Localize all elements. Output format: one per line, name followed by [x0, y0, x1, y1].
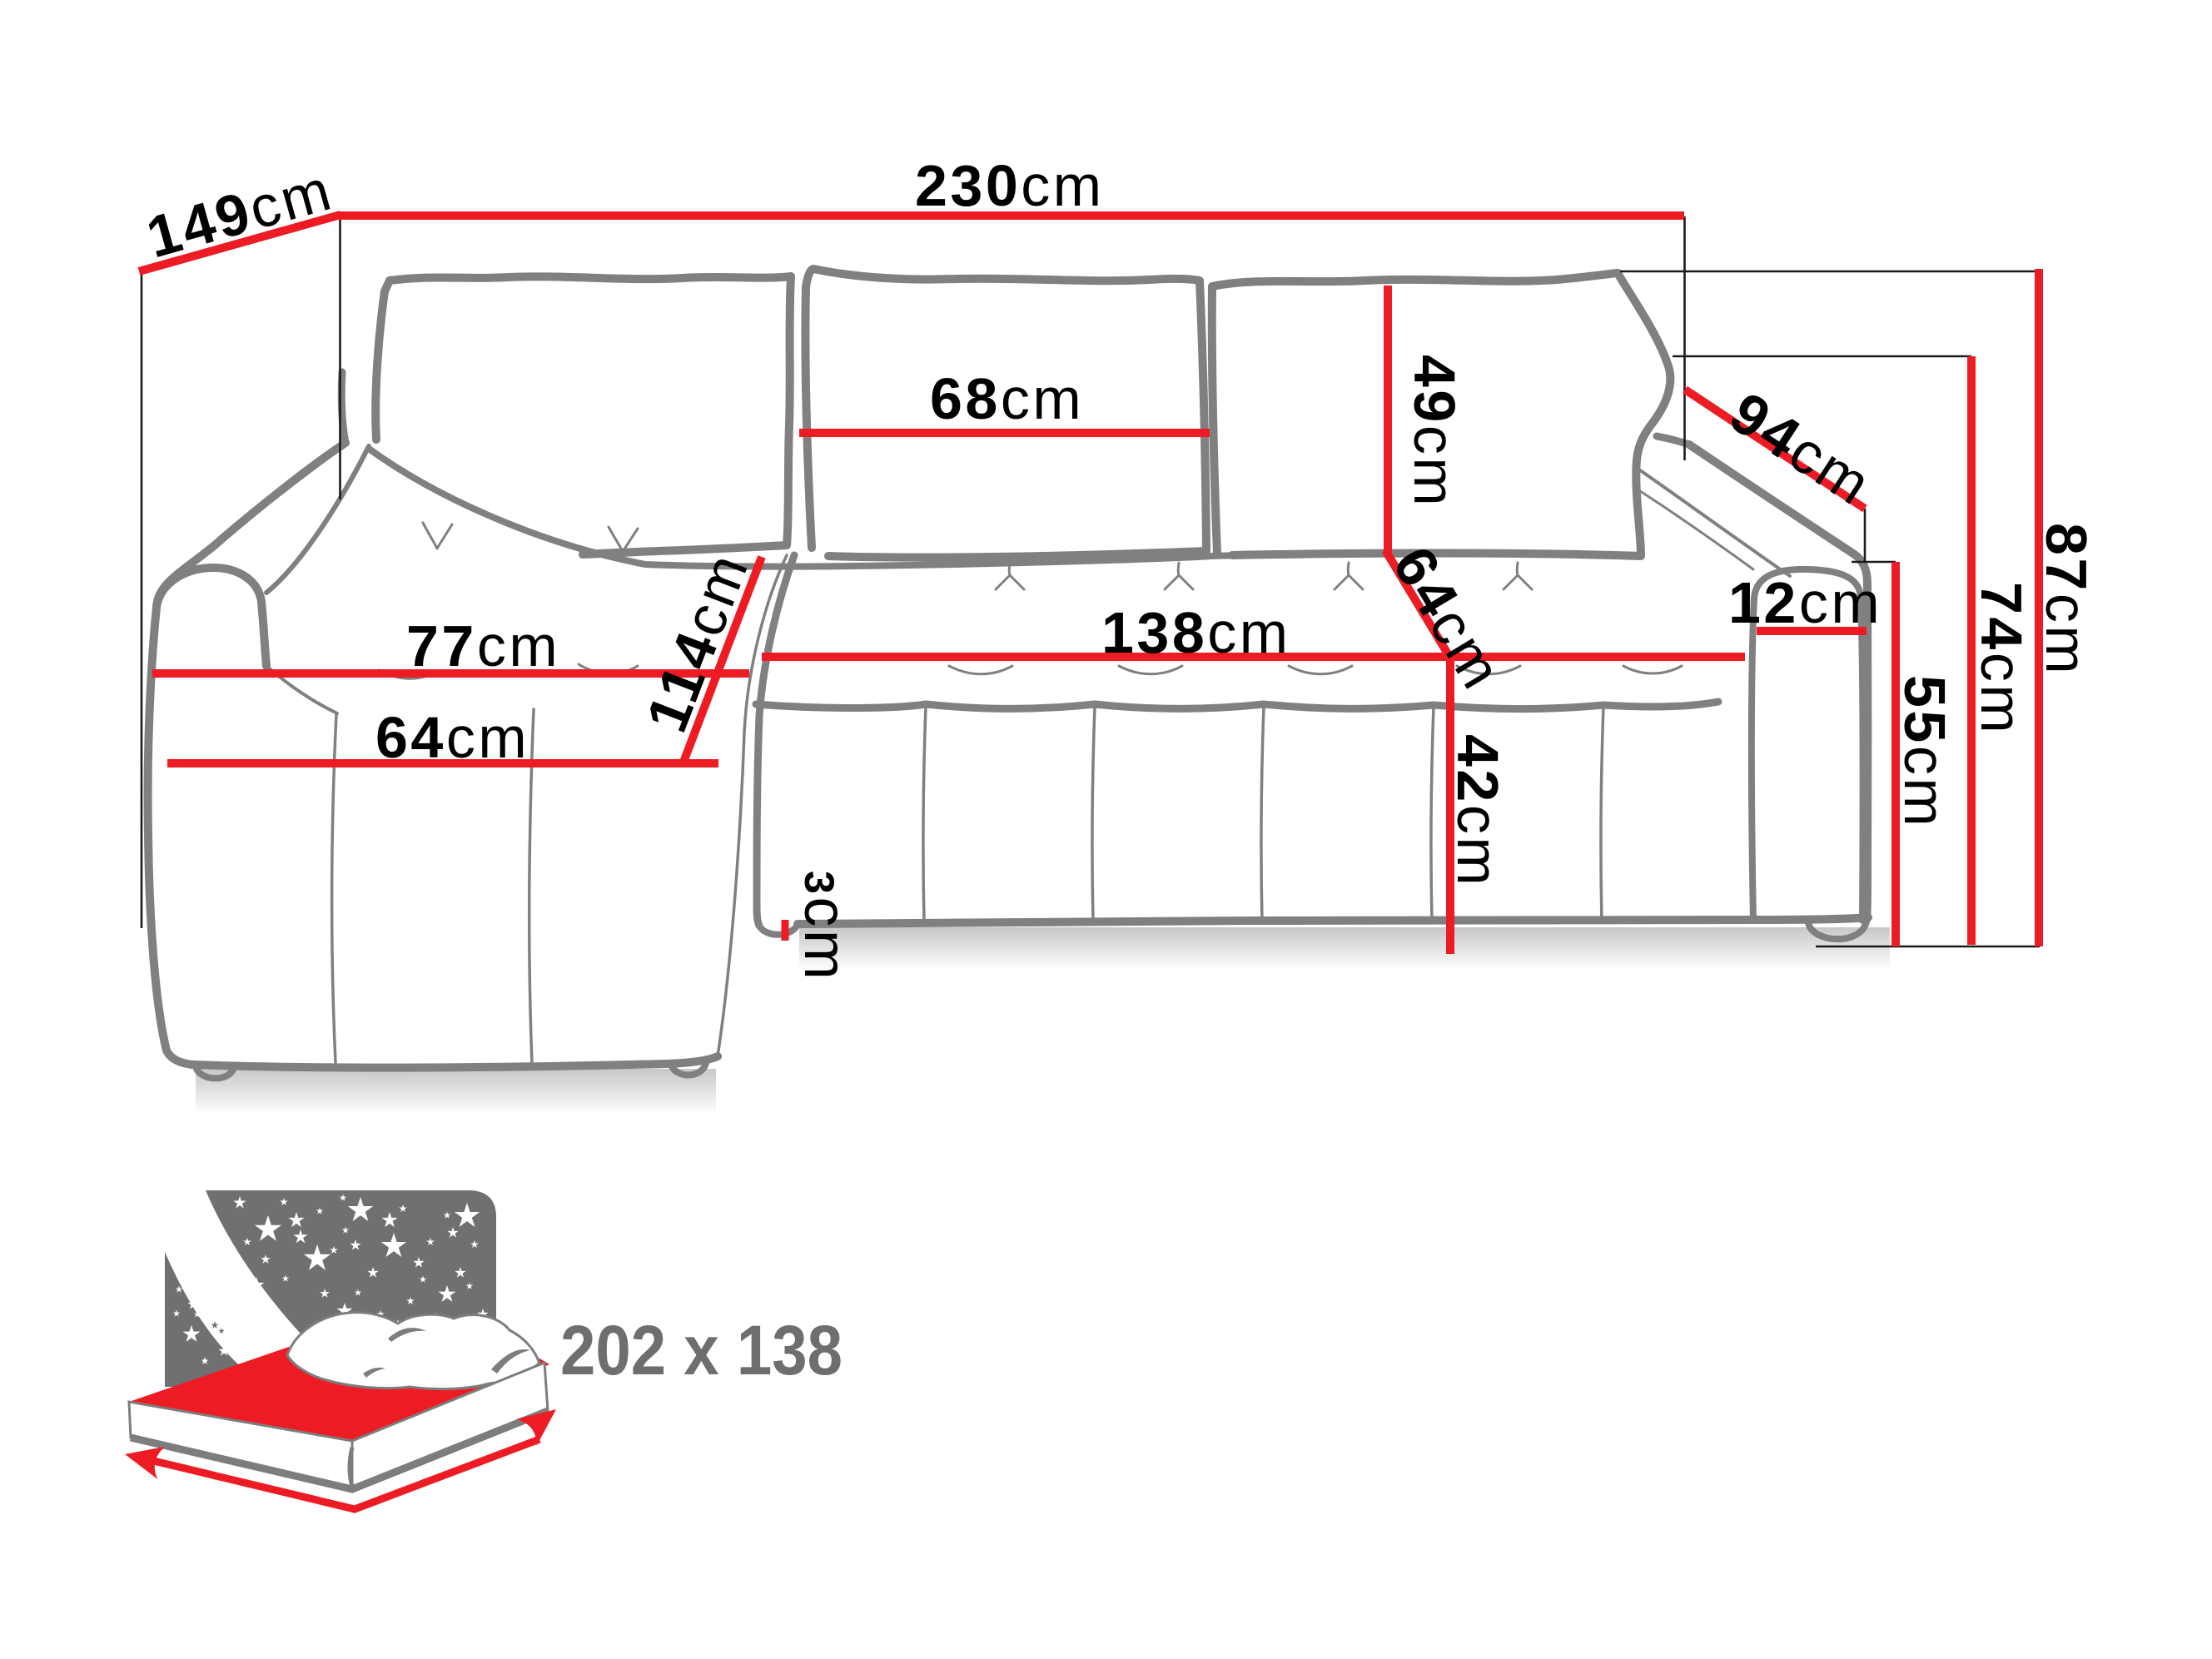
svg-text:12cm: 12cm	[1728, 570, 1882, 635]
svg-text:64cm: 64cm	[375, 705, 529, 770]
svg-text:138cm: 138cm	[1101, 600, 1291, 665]
svg-text:202 x 138: 202 x 138	[560, 1311, 843, 1389]
svg-text:68cm: 68cm	[930, 366, 1084, 431]
svg-text:74cm: 74cm	[1969, 582, 2034, 736]
svg-text:77cm: 77cm	[406, 613, 560, 678]
svg-text:87cm: 87cm	[2034, 523, 2099, 677]
svg-text:55cm: 55cm	[1892, 675, 1957, 829]
svg-text:42cm: 42cm	[1445, 734, 1510, 888]
svg-text:49cm: 49cm	[1402, 355, 1467, 509]
svg-text:230cm: 230cm	[915, 153, 1105, 218]
